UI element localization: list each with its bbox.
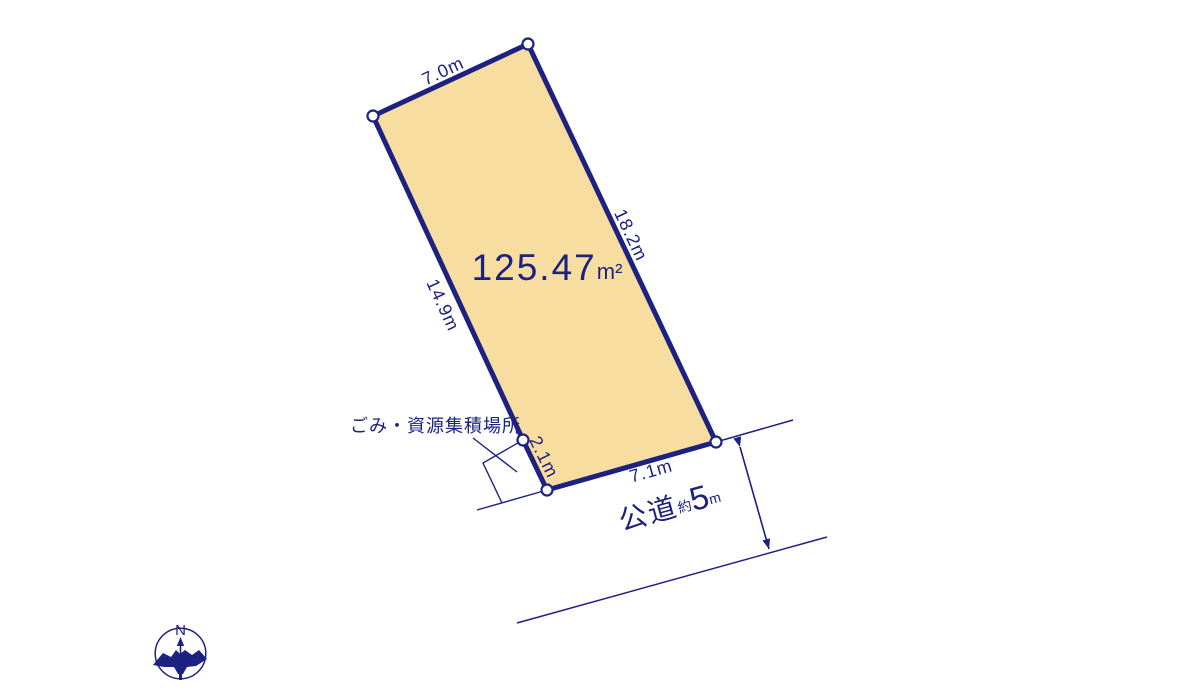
compass-north-icon: N (153, 622, 207, 680)
road-width-arrow (740, 447, 769, 549)
area-unit: m² (597, 259, 623, 284)
road-name: 公道 (615, 491, 681, 537)
boundary-extension-line (477, 490, 547, 510)
road-edge-line-lower (517, 537, 827, 623)
survey-drawing-svg: 7.0m 18.2m 14.9m 2.1m 7.1m 125.47m² ごみ・資… (0, 0, 1200, 700)
garbage-area-leader-line (473, 438, 517, 472)
road-label: 公道約5m (614, 474, 724, 537)
land-plot-diagram: 7.0m 18.2m 14.9m 2.1m 7.1m 125.47m² ごみ・資… (0, 0, 1200, 700)
vertex-marker-bottom-left (542, 485, 553, 496)
vertex-marker-top-left (368, 111, 379, 122)
road-edge-line-upper (716, 420, 793, 442)
vertex-marker-top-right (523, 39, 534, 50)
area-value: 125.47 (472, 247, 597, 288)
compass-north-label: N (175, 622, 186, 639)
vertex-marker-bottom-right (711, 437, 722, 448)
garbage-area-label: ごみ・資源集積場所 (350, 416, 521, 436)
compass-tail (179, 671, 182, 680)
